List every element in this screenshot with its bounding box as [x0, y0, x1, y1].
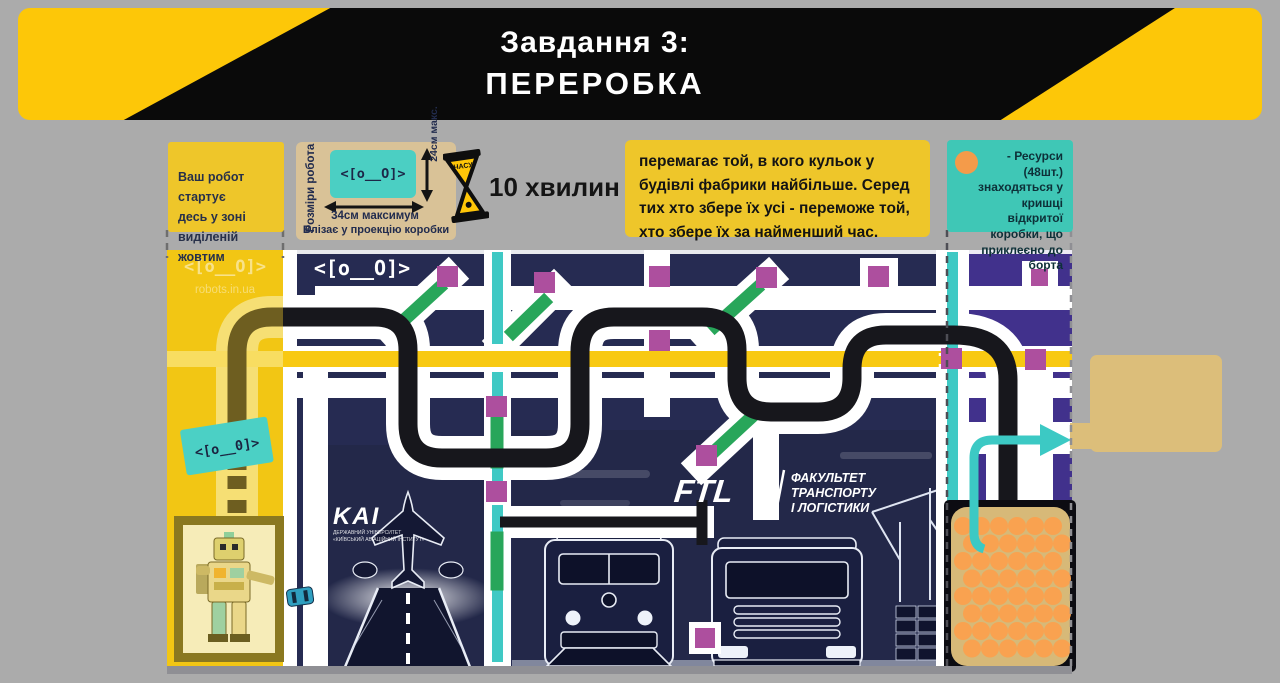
resource-ball: [1017, 640, 1035, 658]
resource-ball: [1008, 552, 1026, 570]
resource-ball-icon: [955, 151, 978, 174]
resource-ball: [999, 605, 1017, 623]
resource-ball: [981, 640, 999, 658]
page-title: Завдання 3: ПЕРЕРОБКА: [18, 8, 1262, 120]
resource-ball: [1035, 640, 1053, 658]
resource-ball: [1026, 622, 1044, 640]
resource-ball: [972, 622, 990, 640]
truck-icon: [712, 538, 862, 666]
real-game-logo: <[o__O]> REAL GAME: [314, 256, 410, 299]
resource-ball: [1035, 605, 1053, 623]
resource-ball: [1053, 570, 1071, 588]
svg-text:«КИЇВСЬКИЙ АВІАЦІЙНИЙ ІНСТИТУТ: «КИЇВСЬКИЙ АВІАЦІЙНИЙ ІНСТИТУТ»: [333, 535, 425, 543]
timer-duration: 10 хвилин: [489, 172, 620, 203]
svg-text:ФАКУЛЬТЕТ: ФАКУЛЬТЕТ: [791, 471, 866, 485]
resource-ball: [963, 640, 981, 658]
yellow-road-pale: [167, 351, 283, 367]
resource-ball: [1035, 535, 1053, 553]
resource-ball: [990, 622, 1008, 640]
resource-ball: [1017, 535, 1035, 553]
resource-ball: [990, 517, 1008, 535]
resource-ball: [1017, 605, 1035, 623]
title-banner: Завдання 3: ПЕРЕРОБКА: [18, 8, 1262, 120]
svg-text:REAL GAME: REAL GAME: [317, 284, 407, 299]
svg-text:<[o__O]>: <[o__O]>: [314, 256, 410, 280]
resource-ball: [1053, 605, 1071, 623]
resource-ball: [1026, 552, 1044, 570]
resource-ball: [972, 552, 990, 570]
resource-ball: [954, 552, 972, 570]
resource-box: [944, 500, 1076, 672]
resource-ball: [963, 570, 981, 588]
svg-text:І ЛОГІСТИКИ: І ЛОГІСТИКИ: [791, 501, 870, 515]
robot-claw-icon: [286, 586, 314, 606]
resource-ball: [1026, 587, 1044, 605]
robot-size-note: Розміри робота <[o__O]> 24см макс. 34см …: [296, 142, 456, 240]
resource-ball: [1008, 587, 1026, 605]
robot-size-side-label: Розміри робота: [305, 142, 317, 234]
robot-height-label: 24см макс.: [428, 104, 440, 164]
resource-ball: [1053, 640, 1071, 658]
resource-ball: [972, 587, 990, 605]
svg-text:robots.in.ua: robots.in.ua: [195, 284, 256, 296]
title-line-2: ПЕРЕРОБКА: [485, 66, 704, 102]
robot-photo: [174, 516, 284, 662]
outer-resource-box: [1070, 355, 1222, 452]
resource-ball: [954, 517, 972, 535]
resource-ball: [1044, 587, 1062, 605]
resource-ball: [990, 552, 1008, 570]
resource-ball: [1044, 517, 1062, 535]
train-icon: [545, 528, 673, 666]
resource-ball: [1008, 517, 1026, 535]
resource-ball: [981, 605, 999, 623]
resource-ball: [1044, 622, 1062, 640]
hourglass-icon: ЧАСУ: [443, 149, 489, 223]
svg-text:FTL: FTL: [673, 473, 735, 509]
robot-size-box: <[o__O]>: [330, 150, 416, 198]
resource-ball: [1026, 517, 1044, 535]
win-rule-note: перемагає той, в кого кульок у будівлі ф…: [625, 140, 930, 237]
svg-text:ДЕРЖАВНИЙ УНІВЕРСИТЕТ: ДЕРЖАВНИЙ УНІВЕРСИТЕТ: [333, 528, 401, 536]
resource-ball: [954, 622, 972, 640]
resource-ball: [999, 535, 1017, 553]
start-zone-note: Ваш робот стартує десь у зоні виділеній …: [168, 142, 284, 232]
resource-ball: [1044, 552, 1062, 570]
resource-ball: [990, 587, 1008, 605]
resource-ball: [1035, 570, 1053, 588]
svg-text:KAI: KAI: [333, 503, 380, 530]
resource-ball: [981, 570, 999, 588]
resource-ball: [963, 605, 981, 623]
resource-ball: [999, 640, 1017, 658]
field-bottom-edge: [167, 666, 1072, 674]
resource-ball: [999, 570, 1017, 588]
resource-ball: [1017, 570, 1035, 588]
title-line-1: Завдання 3:: [500, 26, 689, 60]
resource-ball: [954, 587, 972, 605]
resource-ball: [1053, 535, 1071, 553]
robot-width-label: 34см максимум: [320, 210, 430, 222]
resource-ball: [1008, 622, 1026, 640]
robot-fit-label: Влізає у проекцію коробки: [296, 224, 456, 236]
svg-text:ТРАНСПОРТУ: ТРАНСПОРТУ: [791, 486, 877, 500]
